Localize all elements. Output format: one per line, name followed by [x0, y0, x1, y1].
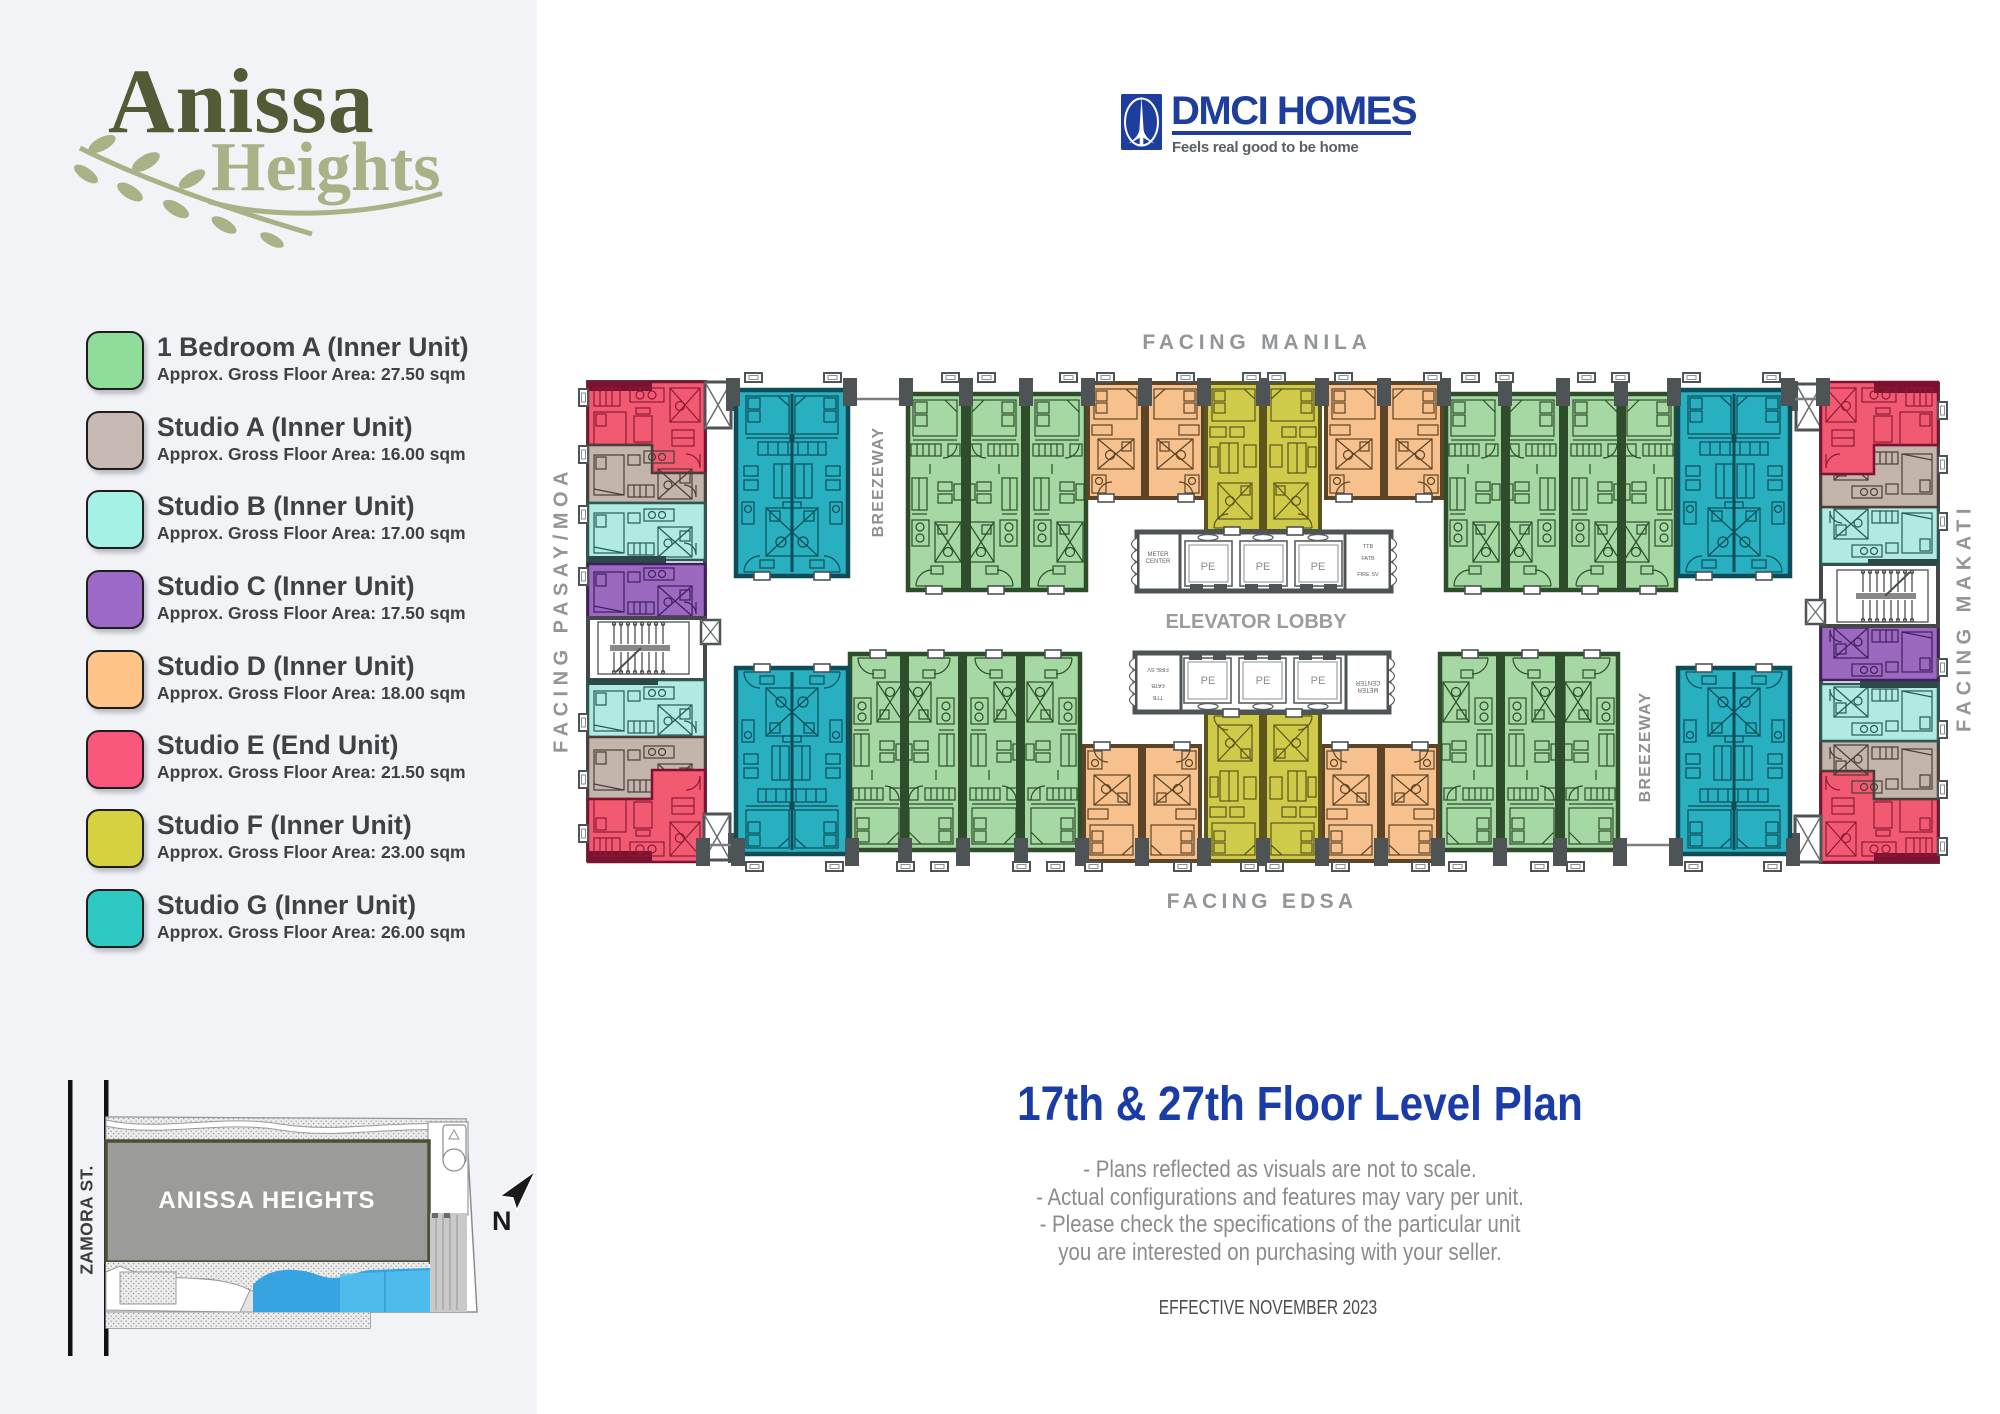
svg-text:PE: PE: [1311, 675, 1326, 687]
svg-text:PE: PE: [1256, 675, 1271, 687]
svg-text:PE: PE: [1311, 561, 1326, 573]
svg-text:CENTER: CENTER: [1146, 559, 1171, 565]
svg-text:N: N: [492, 1206, 512, 1236]
svg-text:PE: PE: [1256, 561, 1271, 573]
svg-text:ANISSA HEIGHTS: ANISSA HEIGHTS: [158, 1187, 375, 1214]
svg-text:PE: PE: [1201, 561, 1216, 573]
svg-text:FATB: FATB: [1361, 556, 1375, 562]
svg-text:FIRE SV: FIRE SV: [1357, 572, 1379, 578]
svg-text:PE: PE: [1201, 675, 1216, 687]
svg-text:ZAMORA ST.: ZAMORA ST.: [77, 1165, 97, 1274]
svg-text:TTB: TTB: [1363, 544, 1374, 550]
svg-text:METER: METER: [1148, 552, 1170, 558]
